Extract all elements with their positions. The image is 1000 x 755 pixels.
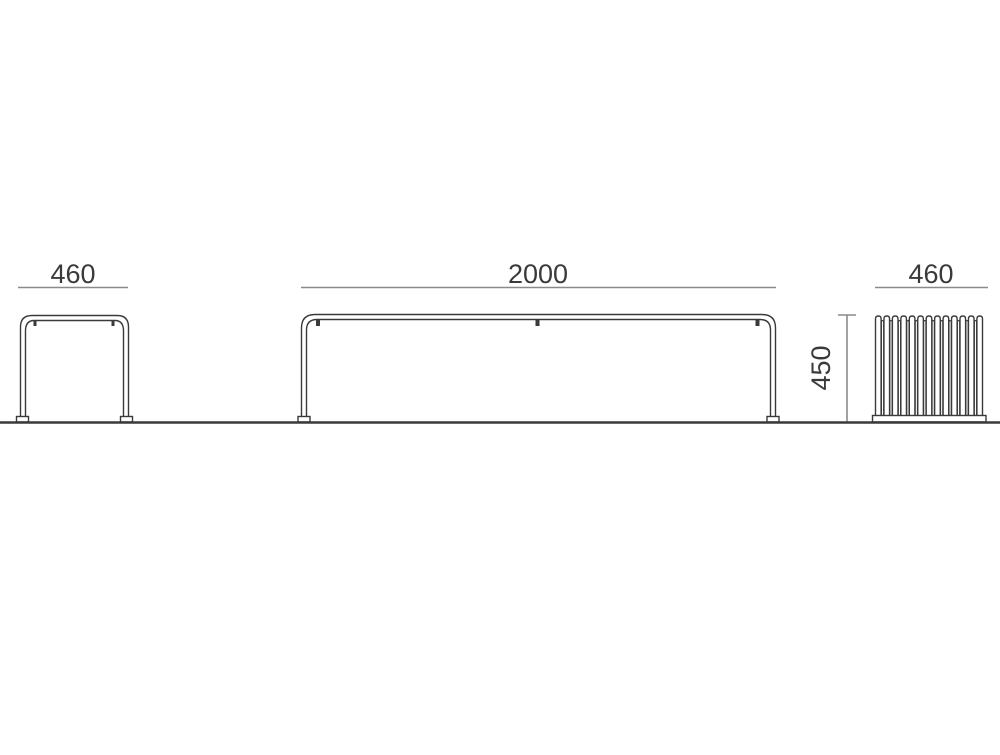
drawing-canvas: 460 2000 450 bbox=[0, 0, 1000, 755]
slat-front-tube bbox=[926, 316, 932, 417]
slat-front-tube bbox=[884, 316, 890, 417]
slat-front-tube bbox=[935, 316, 941, 417]
bench-outer-contour bbox=[302, 315, 776, 418]
slat-base-plate bbox=[873, 416, 987, 423]
dimension-label-left-width: 460 bbox=[50, 259, 95, 289]
slat-front-tube bbox=[968, 316, 974, 417]
slat-front-tube bbox=[943, 316, 949, 417]
slat-front-tube bbox=[901, 316, 907, 417]
bench-foot-right bbox=[767, 417, 779, 423]
bench-clamp-mark-center bbox=[536, 320, 540, 327]
frame-inner-contour bbox=[26, 321, 124, 418]
dimension-left-width: 460 bbox=[18, 259, 128, 289]
side-view-bench bbox=[298, 315, 779, 423]
bench-foot-left bbox=[298, 417, 310, 423]
end-view-left-frame bbox=[17, 316, 133, 423]
slat-front-tube bbox=[892, 316, 898, 417]
bench-clamp-mark-left bbox=[316, 320, 320, 327]
slat-front-tube bbox=[876, 316, 882, 417]
slat-front-tube bbox=[918, 316, 924, 417]
frame-clamp-mark-left bbox=[34, 321, 37, 327]
dimension-label-bench-height: 450 bbox=[806, 345, 836, 390]
frame-clamp-mark-right bbox=[112, 321, 115, 327]
bench-dimension-drawing: 460 2000 450 bbox=[0, 0, 1000, 755]
dimension-right-width: 460 bbox=[875, 259, 988, 289]
slat-front-tube bbox=[960, 316, 966, 417]
bench-clamp-mark-right bbox=[756, 320, 760, 327]
end-view-right-slats bbox=[873, 316, 987, 422]
dimension-bench-length: 2000 bbox=[301, 259, 776, 289]
dimension-label-bench-length: 2000 bbox=[508, 259, 568, 289]
slat-front-tube bbox=[952, 316, 958, 417]
dimension-label-right-width: 460 bbox=[908, 259, 953, 289]
bench-inner-contour bbox=[307, 320, 771, 418]
slat-front-tube bbox=[977, 316, 983, 417]
frame-outer-contour bbox=[21, 316, 129, 418]
slat-array bbox=[876, 316, 983, 417]
slat-front-tube bbox=[909, 316, 915, 417]
dimension-bench-height: 450 bbox=[806, 315, 856, 422]
frame-foot-left bbox=[17, 417, 29, 423]
frame-foot-right bbox=[121, 417, 133, 423]
